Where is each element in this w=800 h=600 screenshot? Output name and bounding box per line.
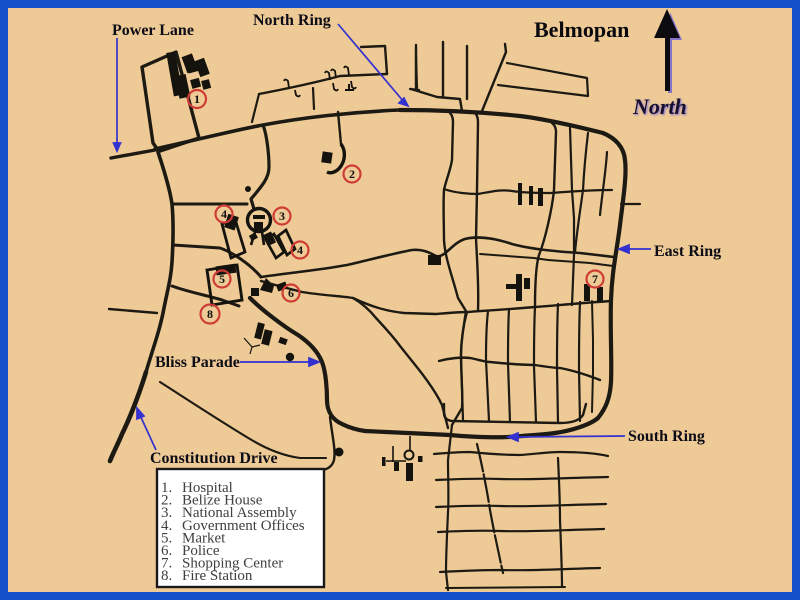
svg-text:8.: 8.: [161, 568, 172, 584]
svg-text:South Ring: South Ring: [628, 428, 705, 445]
svg-text:North: North: [632, 94, 687, 119]
svg-text:4: 4: [297, 243, 303, 257]
svg-text:4: 4: [221, 207, 227, 221]
svg-text:Fire Station: Fire Station: [182, 568, 253, 584]
svg-text:3: 3: [279, 209, 285, 223]
svg-text:Bliss Parade: Bliss Parade: [155, 354, 240, 371]
svg-text:5: 5: [219, 272, 225, 286]
svg-text:North Ring: North Ring: [253, 12, 331, 29]
svg-text:East Ring: East Ring: [654, 243, 721, 260]
svg-text:Power Lane: Power Lane: [112, 22, 194, 39]
svg-text:Belmopan: Belmopan: [534, 17, 629, 42]
svg-text:8: 8: [207, 307, 213, 321]
svg-text:2: 2: [349, 167, 355, 181]
svg-text:Constitution Drive: Constitution Drive: [150, 450, 278, 467]
svg-text:6: 6: [288, 286, 294, 300]
svg-text:7: 7: [592, 272, 598, 286]
svg-text:1: 1: [194, 92, 200, 106]
